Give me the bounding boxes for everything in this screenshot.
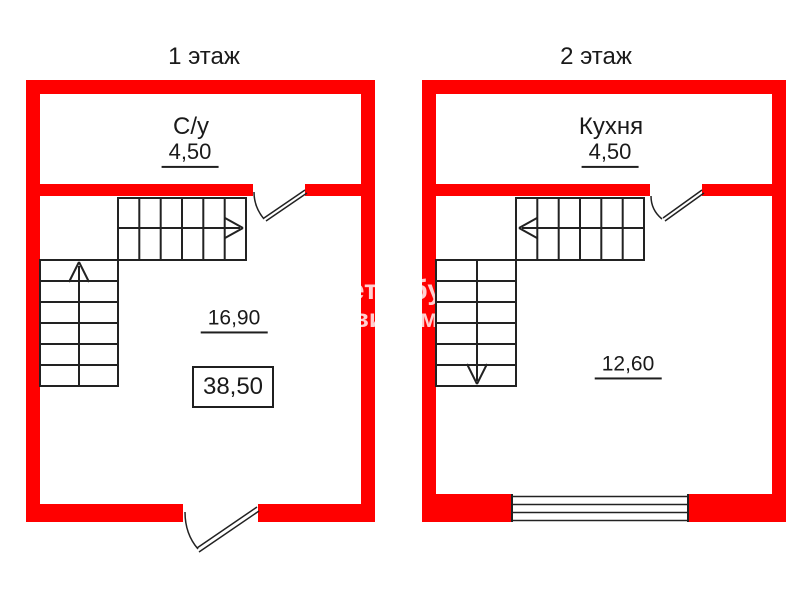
watermark-line2: Недвижимость: [303, 303, 497, 333]
floor2-room-area: 12,60: [595, 352, 662, 379]
floorplan-image: Петербург Недвижимость: [0, 0, 800, 600]
floor2-title: 2 этаж: [560, 44, 632, 70]
floor1-entrance-door-swing-arc: [185, 512, 198, 549]
floor2-window-jambs: [512, 494, 688, 522]
floor2-interior-door: [651, 190, 704, 221]
floor1-interior-door: [254, 190, 307, 221]
floor2-interior-wall-right-segment: [702, 184, 772, 196]
floor2-interior-door-leaf: [663, 190, 704, 221]
floor1-total-area-value: 38,50: [203, 373, 263, 401]
floor1-interior-door-leaf: [264, 190, 307, 221]
floor1-interior-wall-right-segment: [305, 184, 361, 196]
floor1-wall-top: [26, 80, 375, 94]
watermark-line1: Петербург: [329, 274, 472, 305]
floor2-kitchen-area-value: 4,50: [582, 140, 639, 168]
floor1-bathroom-area: 4,50: [162, 140, 219, 168]
floor1-bathroom-label: С/у: [173, 114, 209, 140]
floor2-wall-top: [422, 80, 786, 94]
floor2-wall-right: [772, 80, 786, 522]
floor2-interior-door-swing-arc: [651, 196, 662, 219]
floor1-room-area-value: 16,90: [201, 306, 268, 333]
floor1-wall-left: [26, 80, 40, 522]
floor1-interior-door-swing-arc: [254, 192, 264, 219]
floor2-interior-wall-left-segment: [436, 184, 650, 196]
watermark: Петербург Недвижимость: [303, 274, 497, 333]
floor2-wall-bottom-right-segment: [688, 494, 786, 522]
floor1-entrance-door-leaf: [197, 507, 259, 552]
floor1-bathroom-area-value: 4,50: [162, 140, 219, 168]
floor1-title: 1 этаж: [168, 44, 240, 70]
floor2-linework: [436, 190, 704, 522]
floor2-room-area-value: 12,60: [595, 352, 662, 379]
floor1-entrance-door: [185, 507, 259, 552]
floor1-interior-wall-left-segment: [40, 184, 253, 196]
floorplan-drawing: Петербург Недвижимость: [0, 0, 800, 600]
floor1-wall-bottom-right-segment: [258, 504, 375, 522]
floor2-kitchen-area: 4,50: [582, 140, 639, 168]
floor2-window: [512, 494, 688, 522]
floor1-wall-bottom-left-segment: [26, 504, 183, 522]
floor1-total-area-box: 38,50: [192, 366, 274, 408]
floor2-wall-bottom-left-segment: [422, 494, 512, 522]
floor2-kitchen-label: Кухня: [579, 114, 643, 140]
floor2-window-glazing-lines: [512, 497, 688, 521]
floor1-room-area: 16,90: [201, 306, 268, 333]
